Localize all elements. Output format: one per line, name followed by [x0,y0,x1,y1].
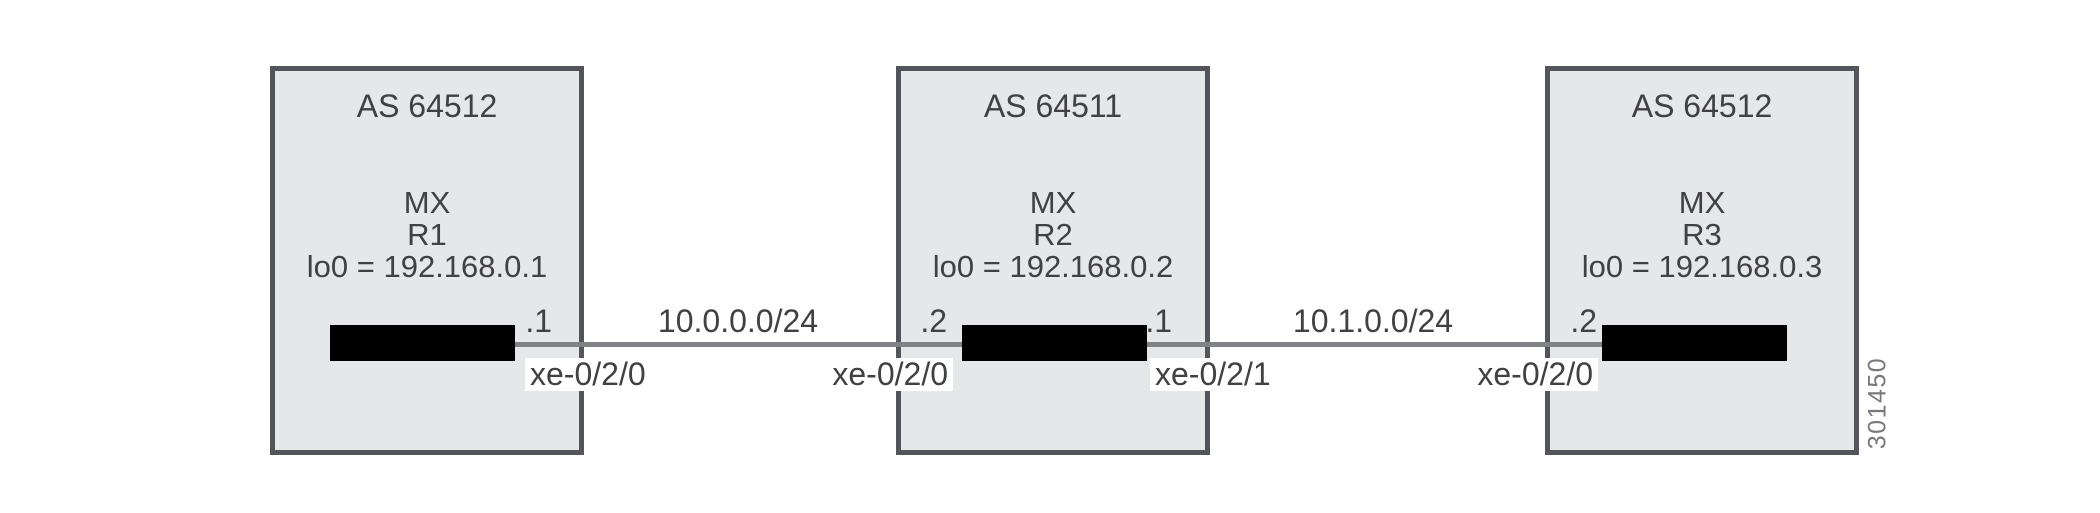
as-label: AS 64512 [275,90,579,123]
router-platform-label: MX [275,187,579,219]
interface-ip-label: .1 [1145,305,1172,338]
as-label: AS 64512 [1550,90,1854,123]
router-info: MX R2 lo0 = 192.168.0.2 [901,187,1205,283]
interface-ip-label: .1 [525,305,552,338]
interface-name-label: xe-0/2/0 [827,358,953,391]
interface-ip-label: .2 [920,305,947,338]
router-name-label: R1 [275,219,579,251]
as-box-r2: AS 64511 MX R2 lo0 = 192.168.0.2 [896,66,1210,455]
interface-name-label: xe-0/2/1 [1150,358,1276,391]
router-name-label: R3 [1550,219,1854,251]
router-platform-label: MX [1550,187,1854,219]
mx-router-icon [1602,325,1787,361]
as-box-r3: AS 64512 MX R3 lo0 = 192.168.0.3 [1545,66,1859,455]
router-platform-label: MX [901,187,1205,219]
router-loopback-label: lo0 = 192.168.0.2 [901,251,1205,283]
figure-number: 301450 [1864,357,1893,449]
as-label: AS 64511 [901,90,1205,123]
interface-ip-label: .2 [1570,305,1597,338]
mx-router-icon [962,325,1147,361]
link-line-r2-r3 [1052,342,1695,347]
as-box-r1: AS 64512 MX R1 lo0 = 192.168.0.1 [270,66,584,455]
interface-name-label: xe-0/2/0 [525,358,651,391]
mx-router-icon [330,325,515,361]
router-info: MX R1 lo0 = 192.168.0.1 [275,187,579,283]
router-info: MX R3 lo0 = 192.168.0.3 [1550,187,1854,283]
bgp-topology-diagram: AS 64512 MX R1 lo0 = 192.168.0.1 AS 6451… [0,0,2100,513]
router-loopback-label: lo0 = 192.168.0.3 [1550,251,1854,283]
router-name-label: R2 [901,219,1205,251]
link-subnet-label: 10.0.0.0/24 [658,305,818,338]
link-subnet-label: 10.1.0.0/24 [1293,305,1453,338]
router-loopback-label: lo0 = 192.168.0.1 [275,251,579,283]
link-line-r1-r2 [440,342,1052,347]
interface-name-label: xe-0/2/0 [1472,358,1598,391]
